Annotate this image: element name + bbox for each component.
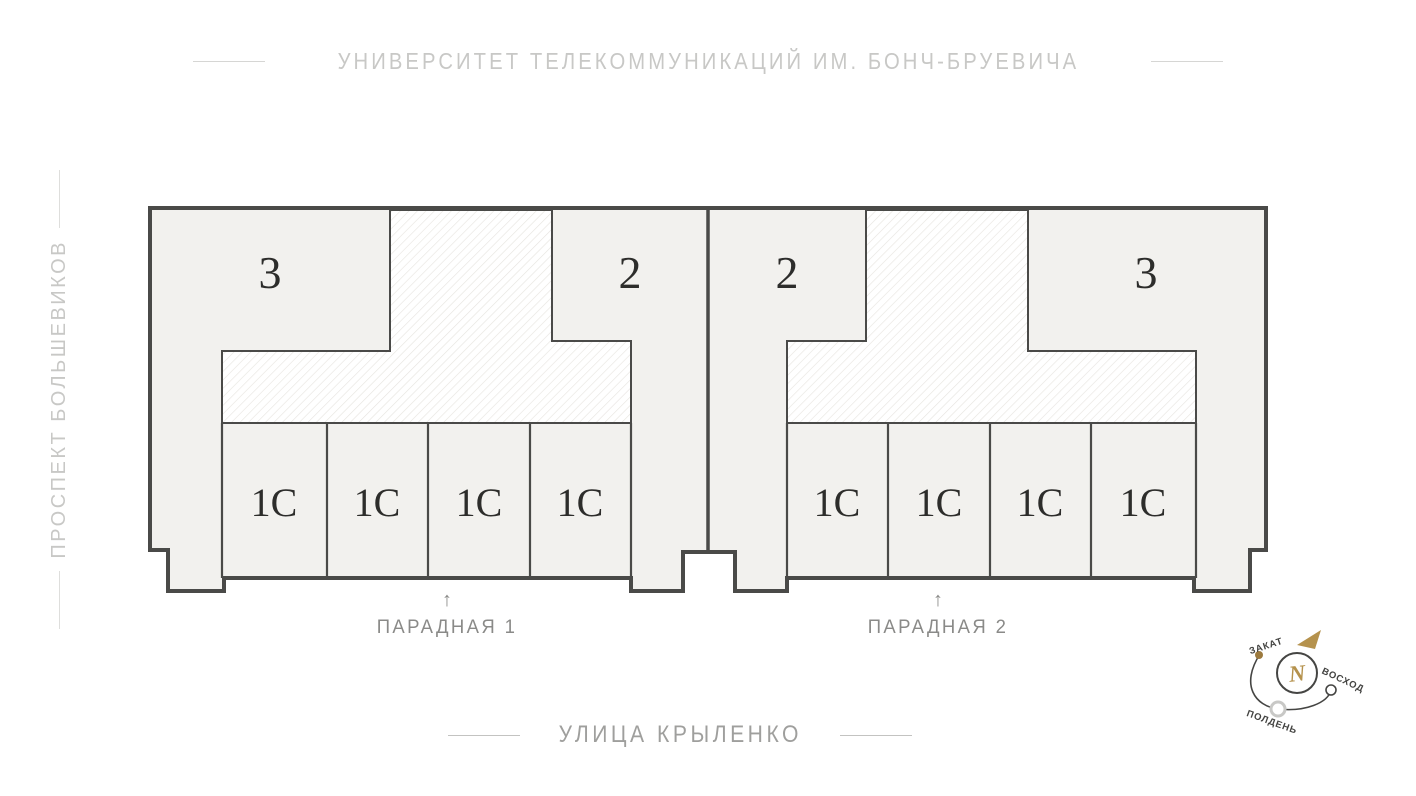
floor-plan-canvas: 3 2 1С 1С 1С 1С 2 3 1С 1С 1С 1С ↑ ПАРАДН… — [0, 0, 1416, 796]
entrance-1: ↑ ПАРАДНАЯ 1 — [377, 589, 518, 638]
entrance-2: ↑ ПАРАДНАЯ 2 — [868, 589, 1009, 638]
building1-studio-1[interactable] — [222, 423, 327, 578]
sunset-label: ЗАКАТ — [1248, 636, 1285, 657]
building1-studio-3[interactable] — [428, 423, 530, 578]
building2-studio-4[interactable] — [1091, 423, 1196, 578]
building1-studio-2[interactable] — [327, 423, 428, 578]
entrance-arrow-icon: ↑ — [442, 589, 452, 611]
building1-studio-4[interactable] — [530, 423, 631, 578]
sunrise-dot — [1326, 685, 1336, 695]
north-arrow-icon — [1297, 630, 1321, 649]
building2-studio-1[interactable] — [787, 423, 888, 578]
site-plan-page: УНИВЕРСИТЕТ ТЕЛЕКОММУНИКАЦИЙ ИМ. БОНЧ-БР… — [0, 0, 1416, 796]
noon-dot — [1271, 702, 1285, 716]
entrance-label: ПАРАДНАЯ 2 — [868, 617, 1009, 639]
entrance-label: ПАРАДНАЯ 1 — [377, 617, 518, 639]
compass: N ЗАКАТ ВОСХОД ПОЛДЕНЬ — [1245, 630, 1366, 737]
building2-studio-2[interactable] — [888, 423, 990, 578]
entrance-arrow-icon: ↑ — [933, 589, 943, 611]
building2-studio-3[interactable] — [990, 423, 1091, 578]
